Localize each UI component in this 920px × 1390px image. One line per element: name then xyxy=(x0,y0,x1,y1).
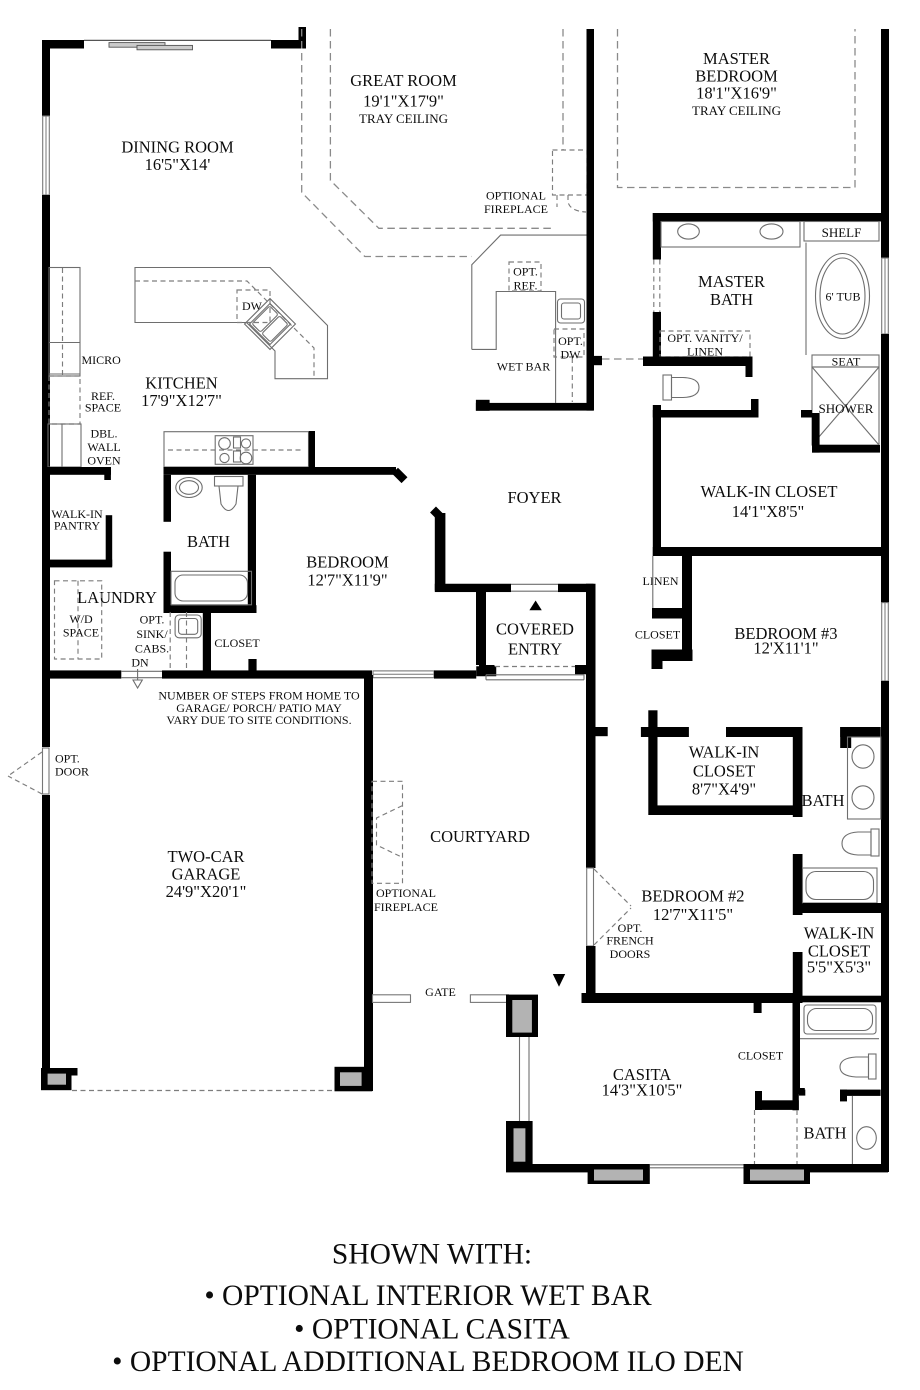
svg-text:FIREPLACE: FIREPLACE xyxy=(484,202,548,216)
svg-text:LINEN: LINEN xyxy=(687,345,723,359)
svg-text:LAUNDRY: LAUNDRY xyxy=(77,588,157,607)
svg-text:GATE: GATE xyxy=(425,985,456,999)
svg-text:FIREPLACE: FIREPLACE xyxy=(374,900,438,914)
svg-text:14'3"X10'5": 14'3"X10'5" xyxy=(602,1081,683,1100)
svg-text:DW: DW xyxy=(561,348,582,362)
svg-text:MASTER: MASTER xyxy=(703,49,770,68)
svg-text:REF.: REF. xyxy=(513,279,537,293)
svg-text:CLOSET: CLOSET xyxy=(693,762,755,781)
svg-text:OPTIONAL: OPTIONAL xyxy=(486,189,546,203)
svg-text:12'7"X11'9": 12'7"X11'9" xyxy=(307,571,387,590)
svg-text:WALK-IN: WALK-IN xyxy=(804,924,875,943)
svg-text:DW: DW xyxy=(242,299,263,313)
svg-text:WALK-IN: WALK-IN xyxy=(689,743,760,762)
svg-text:BATH: BATH xyxy=(710,290,753,309)
svg-text:BATH: BATH xyxy=(803,1124,846,1143)
svg-text:SHOWN WITH:: SHOWN WITH: xyxy=(332,1239,532,1271)
svg-text:BEDROOM: BEDROOM xyxy=(306,553,389,572)
svg-text:GREAT ROOM: GREAT ROOM xyxy=(350,71,457,90)
svg-text:14'1"X8'5": 14'1"X8'5" xyxy=(732,502,805,521)
svg-text:OPTIONAL: OPTIONAL xyxy=(376,886,436,900)
svg-text:CABS.: CABS. xyxy=(135,642,169,656)
svg-text:TRAY CEILING: TRAY CEILING xyxy=(692,103,781,118)
svg-text:FOYER: FOYER xyxy=(507,488,561,507)
svg-text:MICRO: MICRO xyxy=(82,353,122,367)
svg-text:• OPTIONAL INTERIOR WET BAR: • OPTIONAL INTERIOR WET BAR xyxy=(204,1280,652,1312)
svg-text:WALL: WALL xyxy=(87,440,120,454)
svg-text:PANTRY: PANTRY xyxy=(54,519,101,533)
svg-text:19'1"X17'9": 19'1"X17'9" xyxy=(363,92,444,111)
svg-text:LINEN: LINEN xyxy=(643,574,679,588)
svg-text:12'X11'1": 12'X11'1" xyxy=(753,639,818,658)
svg-text:OPT.: OPT. xyxy=(513,265,538,279)
svg-text:SEAT: SEAT xyxy=(832,355,861,369)
svg-text:CLOSET: CLOSET xyxy=(738,1049,784,1063)
svg-text:24'9"X20'1": 24'9"X20'1" xyxy=(166,882,247,901)
svg-text:WALK-IN CLOSET: WALK-IN CLOSET xyxy=(700,482,837,501)
svg-text:SPACE: SPACE xyxy=(85,401,121,415)
svg-text:BATH: BATH xyxy=(187,532,230,551)
svg-text:FRENCH: FRENCH xyxy=(606,934,654,948)
svg-text:TRAY CEILING: TRAY CEILING xyxy=(359,111,448,126)
svg-text:MASTER: MASTER xyxy=(698,272,765,291)
svg-text:18'1"X16'9": 18'1"X16'9" xyxy=(696,84,777,103)
svg-text:OPT.: OPT. xyxy=(558,334,583,348)
svg-text:SHOWER: SHOWER xyxy=(819,401,874,416)
svg-text:BATH: BATH xyxy=(801,791,844,810)
svg-text:SHELF: SHELF xyxy=(822,225,862,240)
svg-text:DN: DN xyxy=(131,656,149,670)
svg-text:• OPTIONAL ADDITIONAL BEDROOM: • OPTIONAL ADDITIONAL BEDROOM ILO DEN xyxy=(112,1346,744,1378)
svg-text:6' TUB: 6' TUB xyxy=(826,290,861,304)
svg-text:CLOSET: CLOSET xyxy=(635,628,681,642)
svg-text:W/D: W/D xyxy=(69,612,93,626)
svg-text:5'5"X5'3": 5'5"X5'3" xyxy=(807,958,871,977)
svg-text:COVERED: COVERED xyxy=(496,620,574,639)
svg-text:DINING ROOM: DINING ROOM xyxy=(121,138,234,157)
svg-text:DBL.: DBL. xyxy=(91,427,118,441)
svg-text:WET BAR: WET BAR xyxy=(497,360,550,374)
svg-text:DOORS: DOORS xyxy=(610,947,651,961)
svg-text:12'7"X11'5": 12'7"X11'5" xyxy=(653,905,733,924)
svg-text:SINK/: SINK/ xyxy=(136,627,168,641)
svg-text:ENTRY: ENTRY xyxy=(508,640,562,659)
svg-text:OPT.: OPT. xyxy=(55,752,80,766)
svg-text:TWO-CAR: TWO-CAR xyxy=(168,847,245,866)
svg-text:• OPTIONAL CASITA: • OPTIONAL CASITA xyxy=(294,1314,570,1346)
svg-text:SPACE: SPACE xyxy=(63,626,99,640)
svg-text:OVEN: OVEN xyxy=(87,454,121,468)
svg-text:CLOSET: CLOSET xyxy=(214,636,260,650)
svg-text:8'7"X4'9": 8'7"X4'9" xyxy=(692,780,756,799)
svg-text:16'5"X14': 16'5"X14' xyxy=(145,155,211,174)
svg-text:DOOR: DOOR xyxy=(55,765,89,779)
svg-text:17'9"X12'7": 17'9"X12'7" xyxy=(141,391,222,410)
svg-text:BEDROOM #2: BEDROOM #2 xyxy=(641,887,744,906)
svg-text:COURTYARD: COURTYARD xyxy=(430,827,530,846)
svg-text:VARY DUE TO SITE CONDITIONS.: VARY DUE TO SITE CONDITIONS. xyxy=(166,713,351,727)
svg-text:OPT. VANITY/: OPT. VANITY/ xyxy=(667,331,743,345)
svg-text:OPT.: OPT. xyxy=(140,613,165,627)
svg-text:GARAGE: GARAGE xyxy=(172,865,241,884)
svg-text:KITCHEN: KITCHEN xyxy=(145,374,217,393)
